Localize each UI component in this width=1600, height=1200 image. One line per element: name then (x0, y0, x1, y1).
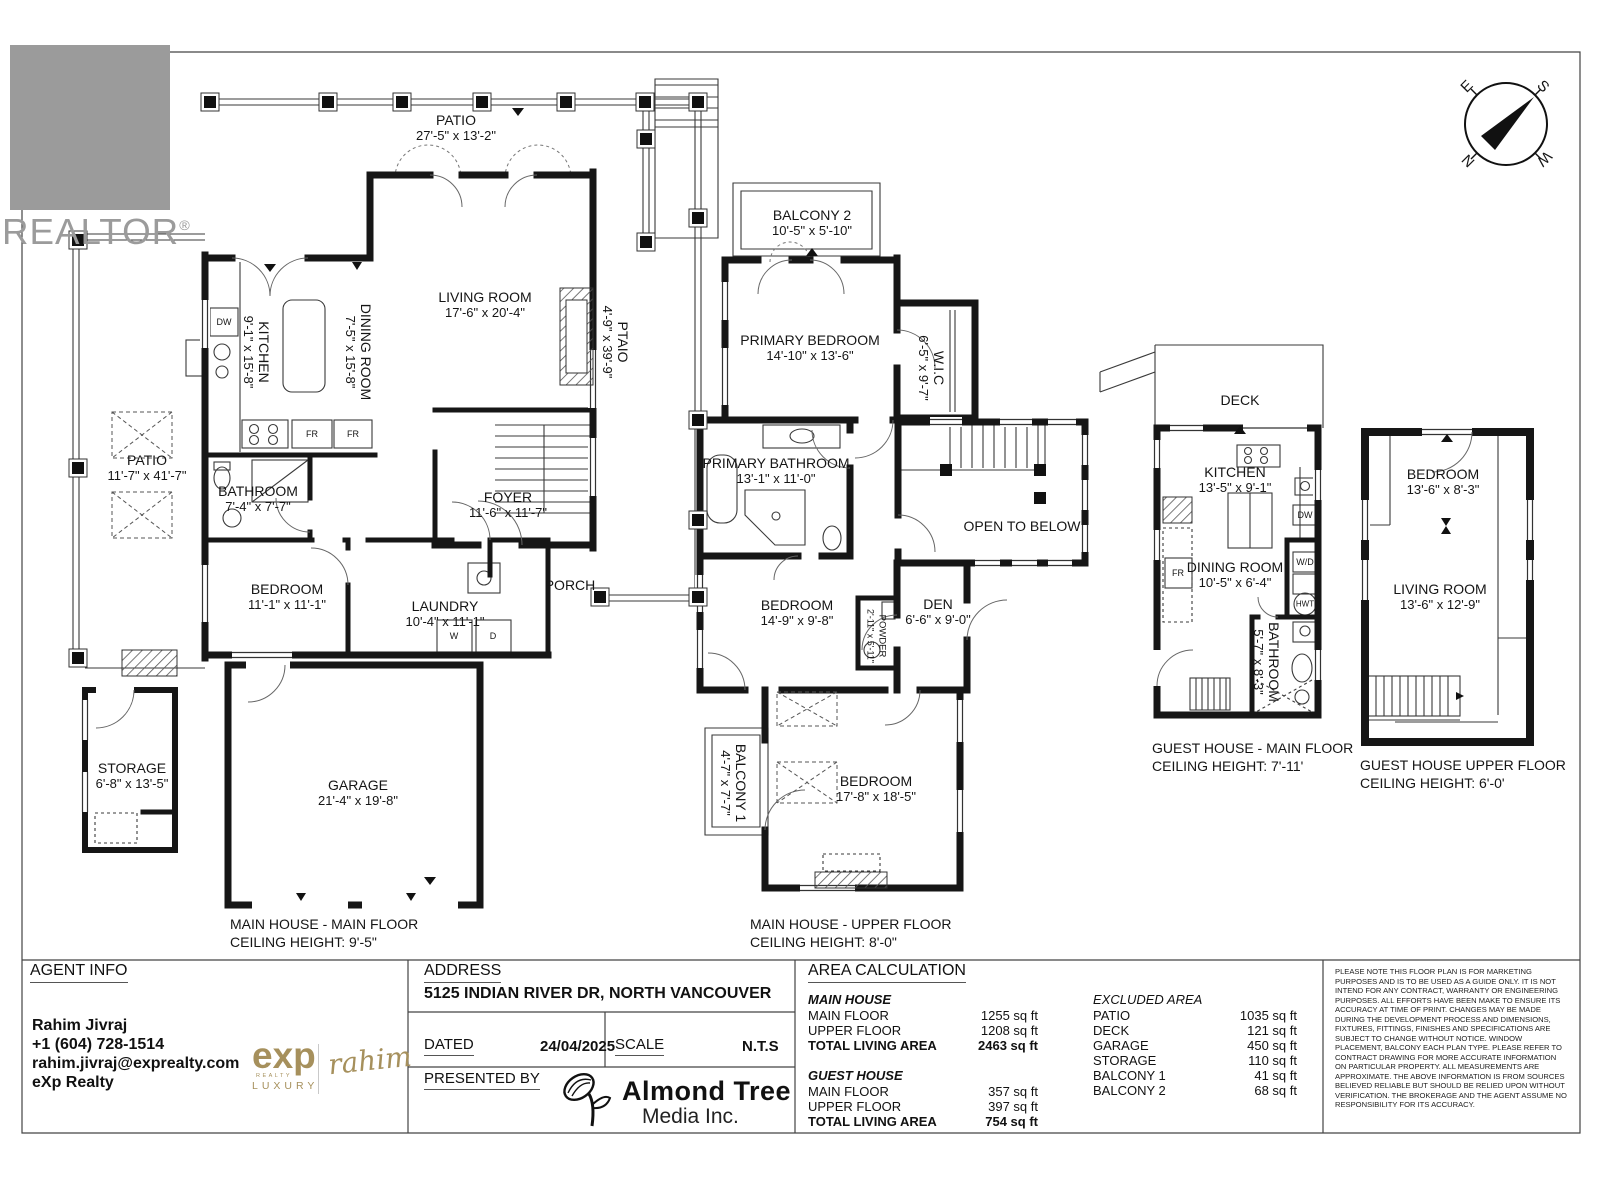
dryer-label: D (490, 631, 497, 641)
area-row-value: 121 sq ft (1247, 1023, 1297, 1038)
caption-main-floor: MAIN HOUSE - MAIN FLOOR CEILING HEIGHT: … (230, 916, 418, 951)
room-label-guest-living: LIVING ROOM 13'-6" x 12'-9" (1393, 581, 1486, 613)
room-dims: 6'-8" x 13'-5" (96, 776, 169, 792)
agent-info-block: Rahim Jivraj +1 (604) 728-1514 rahim.jiv… (32, 1016, 239, 1092)
room-dims: 14'-10" x 13'-6" (740, 348, 880, 364)
guest-fridge-label: FR (1172, 568, 1184, 578)
caption-line2: CEILING HEIGHT: 9'-5" (230, 934, 418, 952)
room-name: BEDROOM (836, 773, 916, 789)
room-label-open-to-below: OPEN TO BELOW (964, 518, 1081, 534)
realtor-logo (10, 45, 170, 210)
exp-realty-logo: exp (252, 1038, 316, 1074)
room-dims: 4'-7" x 7'-7" (717, 744, 733, 822)
area-row-value: 110 sq ft (1248, 1053, 1297, 1068)
disclaimer-text: PLEASE NOTE THIS FLOOR PLAN IS FOR MARKE… (1335, 967, 1567, 1110)
room-dims: 11'-6" x 11'-7" (469, 505, 547, 521)
area-row-label: STORAGE (1093, 1053, 1156, 1068)
dashed-arcs (395, 145, 810, 262)
room-label-foyer: FOYER 11'-6" x 11'-7" (469, 489, 547, 521)
caption-line1: GUEST HOUSE UPPER FLOOR (1360, 757, 1566, 775)
almond-tree-sub: Media Inc. (642, 1105, 739, 1129)
caption-line2: CEILING HEIGHT: 6'-0' (1360, 775, 1566, 793)
room-label-left-patio: PATIO 11'-7" x 41'-7" (108, 452, 187, 484)
room-name: FOYER (469, 489, 547, 505)
room-dims: 7'-5" x 15'-8" (342, 304, 358, 400)
room-label-bathroom: BATHROOM 7'-4" x 7'-7" (218, 483, 298, 515)
almond-tree-name: Almond Tree (622, 1076, 791, 1107)
room-name: DINING ROOM (1187, 559, 1283, 575)
room-label-guest-kitchen: KITCHEN 13'-5" x 9'-1" (1199, 464, 1272, 496)
room-name: DEN (905, 596, 971, 612)
area-row-label: TOTAL LIVING AREA (808, 1038, 937, 1053)
area-row-value: 450 sq ft (1247, 1038, 1297, 1053)
area-excluded-heading: EXCLUDED AREA (1093, 992, 1202, 1007)
area-row-value: 2463 sq ft (978, 1038, 1038, 1053)
address-value: 5125 INDIAN RIVER DR, NORTH VANCOUVER (424, 985, 771, 1003)
room-name: BATHROOM (1266, 622, 1282, 702)
room-label-balcony1: BALCONY 1 4'-7" x 7'-7" (717, 744, 749, 822)
area-row-label: MAIN FLOOR (808, 1008, 889, 1023)
room-name: BEDROOM (761, 597, 834, 613)
area-main-house-heading: MAIN HOUSE (808, 992, 891, 1007)
area-row-label: DECK (1093, 1023, 1129, 1038)
room-name: LAUNDRY (406, 598, 485, 614)
room-dims: 14'-9" x 9'-8" (761, 613, 834, 629)
room-name: BEDROOM (248, 581, 326, 597)
room-name: BATHROOM (218, 483, 298, 499)
area-total-row: TOTAL LIVING AREA 754 sq ft (808, 1114, 1038, 1129)
room-dims: 10'-4" x 11'-1" (406, 614, 485, 630)
room-dims: 4'-9" x 39'-9" (599, 306, 615, 379)
area-row: BALCONY 2 68 sq ft (1093, 1083, 1297, 1098)
room-dims: 5'-7" x 8'-3" (1250, 622, 1266, 702)
room-name: PORCH (545, 577, 596, 593)
scale-label: SCALE (615, 1036, 664, 1056)
room-name: GARAGE (318, 777, 398, 793)
exp-luxury-subtext: LUXURY (252, 1080, 318, 1092)
room-dims: 6'-5" x 9'-7" (915, 335, 931, 401)
room-label-primary-bathroom: PRIMARY BATHROOM 13'-1" x 11'-0" (702, 455, 849, 487)
dated-label: DATED (424, 1036, 474, 1056)
area-row-value: 357 sq ft (988, 1084, 1038, 1099)
room-dims: 11'-7" x 41'-7" (108, 468, 187, 484)
almond-seed-icon (560, 1072, 618, 1128)
guest-washer-dryer-label: W/D (1296, 557, 1314, 567)
area-row-label: UPPER FLOOR (808, 1023, 901, 1038)
room-label-bedroom-big: BEDROOM 17'-8" x 18'-5" (836, 773, 916, 805)
room-dims: 13'-1" x 11'-0" (702, 471, 849, 487)
room-label-guest-dining: DINING ROOM 10'-5" x 6'-4" (1187, 559, 1283, 591)
room-dims: 11'-1" x 11'-1" (248, 597, 326, 613)
caption-line1: GUEST HOUSE - MAIN FLOOR (1152, 740, 1353, 758)
room-name: PRIMARY BEDROOM (740, 332, 880, 348)
scale-value: N.T.S (742, 1038, 779, 1055)
room-label-deck: DECK (1221, 392, 1260, 408)
room-name: OPEN TO BELOW (964, 518, 1081, 534)
area-row: BALCONY 1 41 sq ft (1093, 1068, 1297, 1083)
room-label-living-room: LIVING ROOM 17'-6" x 20'-4" (438, 289, 531, 321)
area-calculation-title: AREA CALCULATION (808, 962, 966, 983)
room-label-laundry: LAUNDRY 10'-4" x 11'-1" (406, 598, 485, 630)
room-name: LIVING ROOM (1393, 581, 1486, 597)
guest-dishwasher-label: DW (1298, 510, 1313, 520)
room-name: DECK (1221, 392, 1260, 408)
area-row-label: BALCONY 2 (1093, 1083, 1166, 1098)
room-label-garage: GARAGE 21'-4" x 19'-8" (318, 777, 398, 809)
realtor-word: REALTOR (2, 211, 179, 252)
area-row-value: 1035 sq ft (1240, 1008, 1297, 1023)
room-dims: 21'-4" x 19'-8" (318, 793, 398, 809)
room-label-guest-bedroom: BEDROOM 13'-6" x 8'-3" (1407, 466, 1480, 498)
floor-plan-page: REALTOR® E S N W PATIO 27'-5" x 13'-2" L… (0, 0, 1600, 1200)
agent-phone[interactable]: +1 (604) 728-1514 (32, 1035, 239, 1054)
room-label-powder: POWDER 2'-11" x 5'-11" (866, 609, 887, 663)
caption-line2: CEILING HEIGHT: 8'-0" (750, 934, 951, 952)
caption-guest-main: GUEST HOUSE - MAIN FLOOR CEILING HEIGHT:… (1152, 740, 1353, 775)
area-row-value: 1208 sq ft (981, 1023, 1038, 1038)
room-dims: 27'-5" x 13'-2" (416, 128, 496, 144)
room-dims: 17'-6" x 20'-4" (438, 305, 531, 321)
area-row: MAIN FLOOR 1255 sq ft (808, 1008, 1038, 1023)
room-label-bedroom-mid: BEDROOM 14'-9" x 9'-8" (761, 597, 834, 629)
fridge-label: FR (306, 429, 318, 439)
room-name: LIVING ROOM (438, 289, 531, 305)
logo-divider (318, 1044, 319, 1094)
room-dims: 10'-5" x 5'-10" (772, 223, 852, 239)
area-row: STORAGE 110 sq ft (1093, 1053, 1297, 1068)
room-label-balcony2: BALCONY 2 10'-5" x 5'-10" (772, 207, 852, 239)
agent-brokerage: eXp Realty (32, 1073, 239, 1092)
room-dims: 13'-5" x 9'-1" (1199, 480, 1272, 496)
compass-rose (1465, 83, 1547, 165)
room-dims: 6'-6" x 9'-0" (905, 612, 971, 628)
room-name: PRIMARY BATHROOM (702, 455, 849, 471)
caption-upper-floor: MAIN HOUSE - UPPER FLOOR CEILING HEIGHT:… (750, 916, 951, 951)
washer-label: W (450, 631, 459, 641)
hot-water-tank-label: HWT (1296, 600, 1314, 609)
area-row-label: UPPER FLOOR (808, 1099, 901, 1114)
room-label-storage: STORAGE 6'-8" x 13'-5" (96, 760, 169, 792)
exp-realty-subtext: REALTY (256, 1073, 292, 1079)
realtor-wordmark: REALTOR® (2, 211, 206, 253)
room-dims: 2'-11" x 5'-11" (866, 609, 877, 663)
room-label-kitchen: KITCHEN 9'-1" x 15'-8" (240, 316, 272, 389)
room-name: STORAGE (96, 760, 169, 776)
room-name: BEDROOM (1407, 466, 1480, 482)
caption-line1: MAIN HOUSE - MAIN FLOOR (230, 916, 418, 934)
caption-line2: CEILING HEIGHT: 7'-11' (1152, 758, 1353, 776)
room-name: BALCONY 2 (772, 207, 852, 223)
room-name: PATIO (416, 112, 496, 128)
room-label-bedroom-main: BEDROOM 11'-1" x 11'-1" (248, 581, 326, 613)
area-row-label: MAIN FLOOR (808, 1084, 889, 1099)
room-label-porch: PORCH (545, 577, 596, 593)
area-guest-house-heading: GUEST HOUSE (808, 1068, 903, 1083)
room-dims: 10'-5" x 6'-4" (1187, 575, 1283, 591)
agent-email[interactable]: rahim.jivraj@exprealty.com (32, 1054, 239, 1073)
room-label-wic: W.I.C 6'-5" x 9'-7" (915, 335, 947, 401)
room-label-primary-bedroom: PRIMARY BEDROOM 14'-10" x 13'-6" (740, 332, 880, 364)
registered-mark-icon: ® (179, 217, 191, 233)
area-row-value: 41 sq ft (1254, 1068, 1297, 1083)
agent-name: Rahim Jivraj (32, 1016, 239, 1035)
area-row: GARAGE 450 sq ft (1093, 1038, 1297, 1053)
room-name: BALCONY 1 (733, 744, 749, 822)
room-label-dining-room: DINING ROOM 7'-5" x 15'-8" (342, 304, 374, 400)
room-label-patio-top: PATIO 27'-5" x 13'-2" (416, 112, 496, 144)
area-row: UPPER FLOOR 397 sq ft (808, 1099, 1038, 1114)
room-name: DINING ROOM (358, 304, 374, 400)
area-row: MAIN FLOOR 357 sq ft (808, 1084, 1038, 1099)
presented-by-label: PRESENTED BY (424, 1070, 540, 1090)
room-name: POWDER (876, 609, 887, 663)
agent-info-title: AGENT INFO (30, 962, 128, 983)
room-label-den: DEN 6'-6" x 9'-0" (905, 596, 971, 628)
room-dims: 13'-6" x 8'-3" (1407, 482, 1480, 498)
room-label-side-patio: PTAIO 4'-9" x 39'-9" (599, 306, 631, 379)
dated-value: 24/04/2025 (540, 1038, 615, 1055)
area-total-row: TOTAL LIVING AREA 2463 sq ft (808, 1038, 1038, 1053)
area-row-label: BALCONY 1 (1093, 1068, 1166, 1083)
area-row-label: TOTAL LIVING AREA (808, 1114, 937, 1129)
room-name: KITCHEN (256, 316, 272, 389)
room-dims: 7'-4" x 7'-7" (218, 499, 298, 515)
room-dims: 17'-8" x 18'-5" (836, 789, 916, 805)
fridge-label: FR (347, 429, 359, 439)
room-label-guest-bathroom: BATHROOM 5'-7" x 8'-3" (1250, 622, 1282, 702)
caption-guest-upper: GUEST HOUSE UPPER FLOOR CEILING HEIGHT: … (1360, 757, 1566, 792)
area-row: DECK 121 sq ft (1093, 1023, 1297, 1038)
room-dims: 13'-6" x 12'-9" (1393, 597, 1486, 613)
room-name: PATIO (108, 452, 187, 468)
area-row-label: PATIO (1093, 1008, 1130, 1023)
area-row-label: GARAGE (1093, 1038, 1149, 1053)
room-name: W.I.C (931, 335, 947, 401)
area-row-value: 1255 sq ft (981, 1008, 1038, 1023)
area-row-value: 68 sq ft (1254, 1083, 1297, 1098)
caption-line1: MAIN HOUSE - UPPER FLOOR (750, 916, 951, 934)
area-row: UPPER FLOOR 1208 sq ft (808, 1023, 1038, 1038)
area-row: PATIO 1035 sq ft (1093, 1008, 1297, 1023)
area-row-value: 754 sq ft (985, 1114, 1038, 1129)
dishwasher-label: DW (217, 317, 232, 327)
room-dims: 9'-1" x 15'-8" (240, 316, 256, 389)
room-name: KITCHEN (1199, 464, 1272, 480)
almond-tree-logo: Almond Tree Media Inc. (560, 1072, 800, 1130)
area-row-value: 397 sq ft (988, 1099, 1038, 1114)
room-name: PTAIO (615, 306, 631, 379)
address-title: ADDRESS (424, 962, 501, 983)
